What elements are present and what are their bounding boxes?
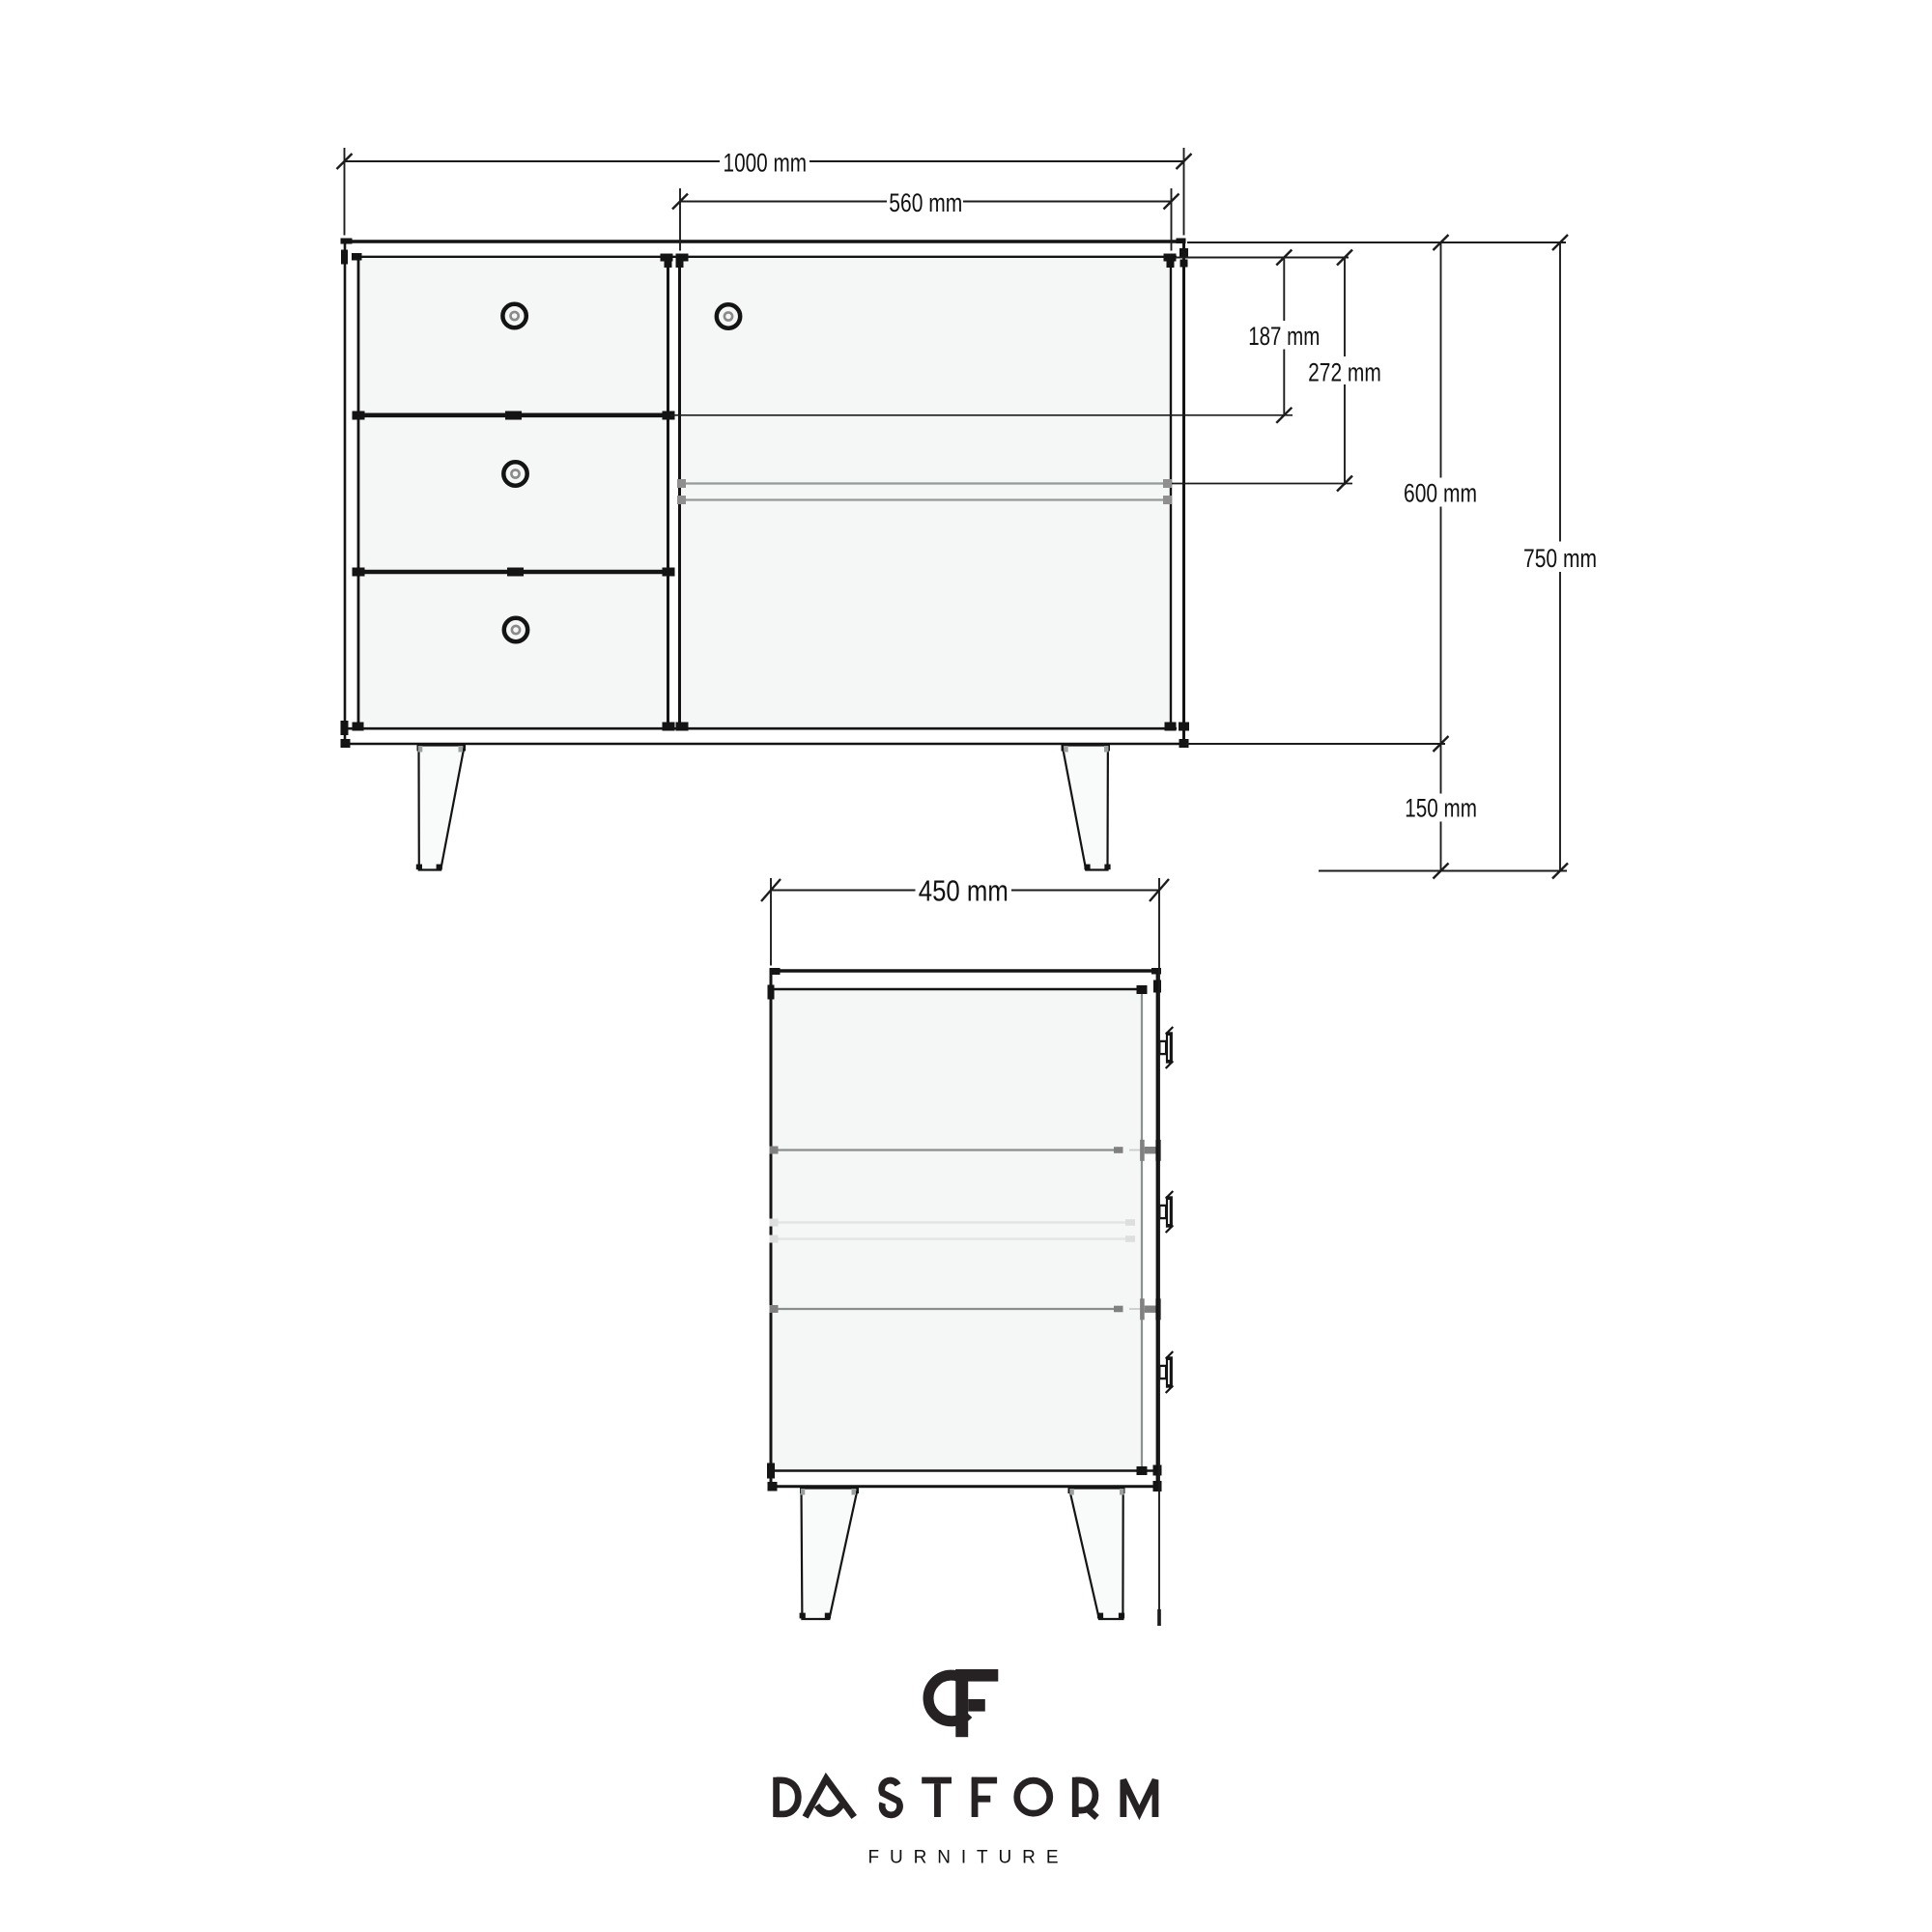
svg-text:150 mm: 150 mm	[1405, 794, 1477, 823]
svg-text:187 mm: 187 mm	[1248, 322, 1320, 351]
svg-text:560 mm: 560 mm	[889, 188, 962, 217]
svg-text:600 mm: 600 mm	[1404, 479, 1477, 508]
svg-text:1000 mm: 1000 mm	[724, 148, 808, 177]
svg-text:750 mm: 750 mm	[1523, 544, 1597, 573]
svg-text:FURNITURE: FURNITURE	[868, 1848, 1059, 1868]
svg-text:450 mm: 450 mm	[919, 873, 1009, 907]
svg-text:272 mm: 272 mm	[1308, 357, 1381, 386]
